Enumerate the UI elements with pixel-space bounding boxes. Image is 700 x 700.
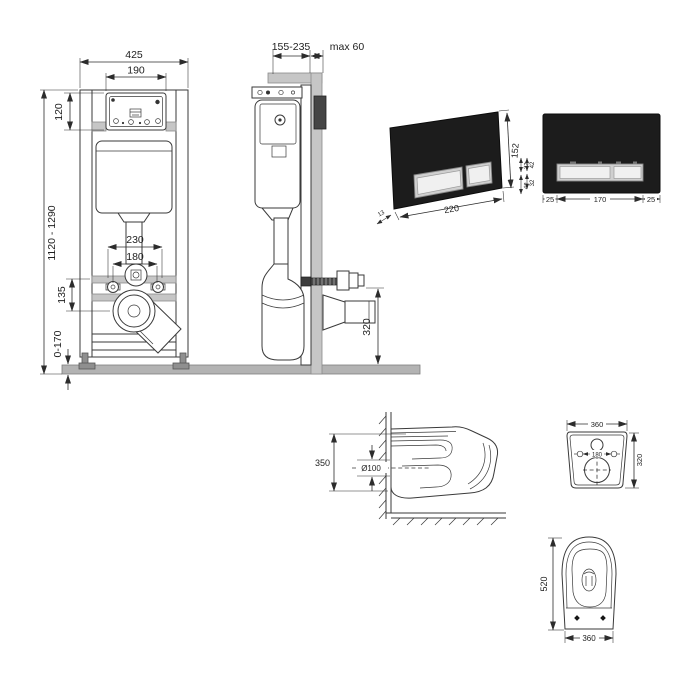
dim-plate2-aux-lower: 32 [530,179,536,186]
dim-back-bolt-spacing: 180 [592,453,603,459]
flush-button-small-front [614,167,641,179]
dim-drain-drop: 135 [56,286,68,304]
technical-drawing: 425 190 120 1120 - 1290 230 180 135 0-17… [0,0,700,700]
dim-back-width: 360 [591,420,604,429]
bolt-hole-right [611,451,617,457]
dim-bolt-spacing: 180 [126,251,144,263]
flush-plate-angled: 152 32 42 220 13 [377,110,530,224]
bowl-outline [391,427,498,498]
dim-panel-width: 190 [127,65,145,77]
dim-outlet-height: 320 [361,318,373,336]
dim-height-range: 1120 - 1290 [46,205,58,260]
bowl-back-view: 360 180 320 [567,419,644,488]
dim-plate-height: 152 [509,143,520,159]
outlet-flange [323,295,345,330]
flush-plate-front: 42 32 25 170 25 [527,114,660,204]
dim-panel-height: 120 [53,103,65,121]
dim-plate2-right-margin: 25 [647,195,655,204]
dim-bowl-height: 350 [315,458,330,468]
plate-recess-side [314,96,326,129]
dim-plate2-left-margin: 25 [546,195,554,204]
bolt-hole-left [577,451,583,457]
dim-outlet-diameter: Ø100 [361,464,381,473]
dim-plate-thickness: 13 [377,210,386,219]
dim-plate2-buttons-width: 170 [594,195,607,204]
flush-button-large-front [560,167,610,179]
floor-band [62,365,420,374]
inlet-hole [591,439,603,451]
bowl-plan-view: 520 360 [539,537,616,643]
dim-plan-depth: 520 [539,576,549,591]
bowl-side-view: 350 Ø100 [315,412,506,525]
access-panel [106,93,166,130]
dim-finish-max: max 60 [330,41,365,53]
dim-depth-range: 155-235 [272,41,311,53]
dim-overall-width: 425 [125,49,143,61]
installation-side-view: 155-235 max 60 320 [252,41,384,374]
rod-fitting [337,271,349,290]
floor-hatching [393,518,498,525]
installation-front-view: 425 190 120 1120 - 1290 230 180 135 0-17… [40,49,189,390]
cistern-body [96,141,172,213]
dim-foot-adjust: 0-170 [52,330,64,357]
valve-icon [130,109,141,117]
siphon-trap [262,264,304,360]
dim-plan-width: 360 [582,634,596,643]
dim-plate2-aux-upper: 42 [530,161,536,168]
threaded-rod [311,278,337,285]
dim-plate-width: 220 [443,203,459,215]
dim-back-height: 320 [635,454,644,467]
flush-plate-angled-body [390,112,502,209]
dim-supply-spacing: 230 [126,234,144,246]
